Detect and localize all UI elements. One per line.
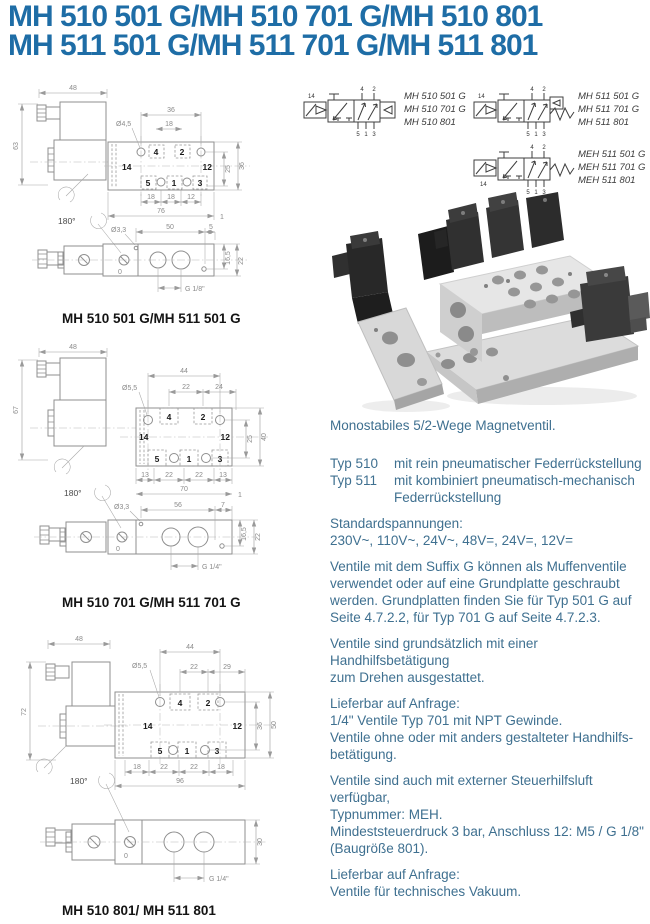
- text-line: Ventile sind grundsätzlich mit einer Han…: [330, 635, 650, 669]
- d1-side-view: 48 63 180°: [13, 85, 121, 253]
- type-desc: mit kombiniert pneumatisch-mechanisch Fe…: [394, 472, 635, 506]
- text-line: zum Drehen ausgestattet.: [330, 669, 650, 686]
- dim-label: 67: [13, 406, 20, 414]
- symbol-port-1: 1: [534, 132, 538, 138]
- port-5: 5: [155, 454, 160, 464]
- symbol-model-label: MH 510 701 G: [404, 104, 466, 115]
- type-desc-line: Federrückstellung: [394, 490, 501, 505]
- port-4: 4: [154, 147, 159, 157]
- dim-label: 29: [223, 664, 231, 671]
- para-handhilfe: Ventile sind grundsätzlich mit einer Han…: [330, 635, 650, 686]
- dim-label: 22: [165, 472, 173, 479]
- port-12: 12: [203, 162, 213, 172]
- text-line: verwendet oder auf eine Grundplatte gesc…: [330, 575, 650, 592]
- override-label: 0: [116, 546, 120, 553]
- drawing-1-caption: MH 510 501 G/MH 511 501 G: [62, 311, 241, 326]
- d3-side-view: 48 72 180°: [21, 636, 129, 832]
- d1-top-view: 4 2 14 12 5 1 3 36 Ø4,5 18 25 36 18 18: [104, 107, 250, 221]
- port-4: 4: [178, 698, 183, 708]
- rotation-label: 180°: [58, 216, 76, 226]
- symbol-model-label: MEH 511 801: [578, 175, 635, 186]
- dim-label: 5: [209, 224, 213, 231]
- port-5: 5: [158, 746, 163, 756]
- voltages-label: Standardspannungen:: [330, 515, 650, 532]
- port-14: 14: [122, 162, 132, 172]
- dim-label: 13: [219, 472, 227, 479]
- dim-label: Ø5,5: [132, 663, 147, 670]
- port-2: 2: [180, 147, 185, 157]
- dim-label: 36: [257, 722, 264, 730]
- dim-label: 40: [261, 433, 268, 441]
- dim-label: 1: [220, 214, 224, 221]
- symbol-port-4: 4: [530, 145, 534, 151]
- type-name: Typ 510: [330, 455, 394, 472]
- drawing-mh510-701g: 48 67 180°: [8, 340, 300, 592]
- dim-label: 44: [180, 368, 188, 375]
- dim-label: 18: [165, 121, 173, 128]
- type-row-511: Typ 511 mit kombiniert pneumatisch-mecha…: [330, 472, 650, 506]
- rotation-label: 180°: [64, 488, 82, 498]
- dim-label: 22: [190, 764, 198, 771]
- catalog-page: MH 510 501 G/MH 510 701 G/MH 510 801 MH …: [0, 0, 650, 924]
- port-4: 4: [167, 412, 172, 422]
- type-name: Typ 511: [330, 472, 394, 506]
- para-meh: Ventile sind auch mit externer Steuerhil…: [330, 772, 650, 857]
- dim-label: 44: [186, 644, 194, 651]
- dim-label: 13: [141, 472, 149, 479]
- port-1: 1: [172, 178, 177, 188]
- dim-label: 50: [166, 224, 174, 231]
- dim-label: 48: [69, 344, 77, 351]
- drawing-mh510-801: 48 72 180°: [8, 620, 300, 904]
- override-label: 0: [124, 853, 128, 860]
- port-5: 5: [146, 178, 151, 188]
- port-1: 1: [187, 454, 192, 464]
- symbol-port-4: 4: [360, 87, 364, 93]
- symbol-port-3: 3: [372, 132, 376, 138]
- dim-label: 7: [221, 502, 225, 509]
- dim-label: 18: [147, 194, 155, 201]
- text-line: (Baugröße 801).: [330, 840, 650, 857]
- dim-label: 25: [225, 165, 232, 173]
- voltages-values: 230V~, 110V~, 24V~, 48V=, 24V=, 12V=: [330, 532, 650, 549]
- drawing-2-caption: MH 510 701 G/MH 511 701 G: [62, 595, 241, 610]
- text-line: Ventile mit dem Suffix G können als Muff…: [330, 558, 650, 575]
- thread-label: G 1/4": [202, 564, 222, 571]
- port-3: 3: [198, 178, 203, 188]
- port-2: 2: [206, 698, 211, 708]
- port-12: 12: [233, 721, 243, 731]
- symbol-model-label: MH 510 801: [404, 117, 456, 128]
- dim-label: 22: [238, 257, 245, 265]
- symbol-model-label: MH 511 801: [578, 117, 629, 128]
- port-14: 14: [139, 432, 149, 442]
- dim-label: 24: [215, 384, 223, 391]
- symbol-meh511: 14 4 2 5 1 3 MEH 511 501 G MEH 511 701 G…: [474, 145, 645, 196]
- symbol-model-label: MH 511 501 G: [578, 91, 639, 102]
- valve-symbols: 14 4 2 5 1 3 MH 510 501 G MH 510 701 G M…: [296, 80, 650, 198]
- dim-label: 16,5: [225, 251, 232, 265]
- dim-label: 18: [133, 764, 141, 771]
- type-table: Typ 510 mit rein pneumatischer Federrück…: [330, 455, 650, 506]
- para-avail-2: Lieferbar auf Anfrage: Ventile für techn…: [330, 866, 650, 900]
- symbol-port-3: 3: [542, 132, 546, 138]
- para-avail-1: Lieferbar auf Anfrage: 1/4" Ventile Typ …: [330, 695, 650, 763]
- text-line: betätigung.: [330, 746, 650, 763]
- dim-label: Ø3,3: [111, 227, 126, 234]
- symbol-port-5: 5: [526, 132, 530, 138]
- port-3: 3: [215, 746, 220, 756]
- thread-label: G 1/8": [185, 286, 205, 293]
- port-14: 14: [143, 721, 153, 731]
- symbol-model-label: MEH 511 501 G: [578, 149, 645, 160]
- dim-label: 72: [21, 708, 28, 716]
- thread-label: G 1/4": [209, 876, 229, 883]
- symbol-port-4: 4: [530, 87, 534, 93]
- dim-label: 16,5: [241, 527, 248, 541]
- dim-label: 12: [187, 194, 195, 201]
- symbol-model-label: MEH 511 701 G: [578, 162, 645, 173]
- dim-label: 22: [255, 533, 262, 541]
- symbol-port-1: 1: [364, 132, 368, 138]
- dim-label: 36: [167, 107, 175, 114]
- d3-bottom-view: 0 30 G 1/4": [40, 820, 266, 883]
- symbol-port-14: 14: [480, 182, 487, 188]
- text-line: Lieferbar auf Anfrage:: [330, 866, 650, 883]
- dim-label: 56: [174, 502, 182, 509]
- symbol-port-14: 14: [478, 94, 485, 100]
- drawing-mh510-501g: 48 63 180°: [8, 82, 300, 312]
- dim-label: 22: [195, 472, 203, 479]
- rotation-label: 180°: [70, 776, 88, 786]
- dim-label: 1: [238, 492, 242, 499]
- symbol-model-label: MH 511 701 G: [578, 104, 639, 115]
- override-label: 0: [118, 269, 122, 276]
- symbol-mh511: 14 4 2 5 1 3 MH 511 501 G MH 511 701 G M…: [474, 87, 639, 138]
- dim-label: 48: [75, 636, 83, 643]
- dim-label: 25: [247, 435, 254, 443]
- text-line: Ventile für technisches Vakuum.: [330, 883, 650, 900]
- text-line: Seite 4.7.2.2, für Typ 701 G auf Seite 4…: [330, 609, 650, 626]
- text-line: 1/4" Ventile Typ 701 mit NPT Gewinde.: [330, 712, 650, 729]
- d2-side-view: 48 67 180°: [13, 344, 136, 528]
- symbol-port-14: 14: [308, 94, 315, 100]
- para-suffix-g: Ventile mit dem Suffix G können als Muff…: [330, 558, 650, 626]
- symbol-port-2: 2: [542, 145, 546, 151]
- port-12: 12: [221, 432, 231, 442]
- valve-manifold: [418, 192, 650, 404]
- text-line: Typnummer: MEH.: [330, 806, 650, 823]
- dim-label: 48: [69, 85, 77, 92]
- intro-text: Monostabiles 5/2-Wege Magnetventil.: [330, 417, 650, 434]
- page-title: MH 510 501 G/MH 510 701 G/MH 510 801 MH …: [8, 2, 542, 60]
- text-line: werden. Grundplatten finden Sie für Typ …: [330, 592, 650, 609]
- type-desc: mit rein pneumatischer Federrückstellung: [394, 455, 642, 472]
- dim-label: 18: [217, 764, 225, 771]
- dim-label: Ø5,5: [122, 385, 137, 392]
- dim-label: 30: [257, 838, 264, 846]
- type-row-510: Typ 510 mit rein pneumatischer Federrück…: [330, 455, 650, 472]
- dim-label: Ø4,5: [116, 121, 131, 128]
- symbol-port-5: 5: [356, 132, 360, 138]
- dim-label: 22: [182, 384, 190, 391]
- text-line: Lieferbar auf Anfrage:: [330, 695, 650, 712]
- text-line: Ventile ohne oder mit anders gestalteter…: [330, 729, 650, 746]
- symbol-port-2: 2: [372, 87, 376, 93]
- title-line-1: MH 510 501 G/MH 510 701 G/MH 510 801: [8, 2, 542, 31]
- dim-label: 63: [13, 142, 20, 150]
- product-photo: [330, 192, 650, 414]
- dim-label: 36: [239, 162, 246, 170]
- text-line: Mindeststeuerdruck 3 bar, Anschluss 12: …: [330, 823, 650, 840]
- dim-label: 50: [271, 721, 278, 729]
- d3-top-view: 4 2 14 12 5 1 3 44 Ø5,5 22 29 36 50: [104, 644, 278, 790]
- dim-label: 22: [160, 764, 168, 771]
- d2-bottom-view: Ø3,3 0 56 7 16,: [34, 502, 262, 571]
- dim-label: 18: [167, 194, 175, 201]
- port-1: 1: [185, 746, 190, 756]
- port-3: 3: [218, 454, 223, 464]
- d1-bottom-view: Ø3,3 0 50 5 16,: [32, 224, 248, 293]
- dim-label: Ø3,3: [114, 504, 129, 511]
- symbol-port-2: 2: [542, 87, 546, 93]
- dim-label: 96: [176, 778, 184, 785]
- d2-top-view: 4 2 14 12 5 1 3 44 Ø5,5 22 24 25 40: [120, 368, 268, 499]
- port-2: 2: [201, 412, 206, 422]
- type-desc-line: mit kombiniert pneumatisch-mechanisch: [394, 473, 635, 488]
- title-line-2: MH 511 501 G/MH 511 701 G/MH 511 801: [8, 31, 542, 60]
- dim-label: 76: [157, 208, 165, 215]
- info-column: Monostabiles 5/2-Wege Magnetventil. Typ …: [330, 417, 650, 909]
- dim-label: 70: [180, 486, 188, 493]
- symbol-mh510: 14 4 2 5 1 3 MH 510 501 G MH 510 701 G M…: [304, 87, 466, 138]
- voltages: Standardspannungen: 230V~, 110V~, 24V~, …: [330, 515, 650, 549]
- text-line: Ventile sind auch mit externer Steuerhil…: [330, 772, 650, 806]
- dim-label: 22: [190, 664, 198, 671]
- drawing-3-caption: MH 510 801/ MH 511 801: [62, 903, 216, 918]
- symbol-model-label: MH 510 501 G: [404, 91, 466, 102]
